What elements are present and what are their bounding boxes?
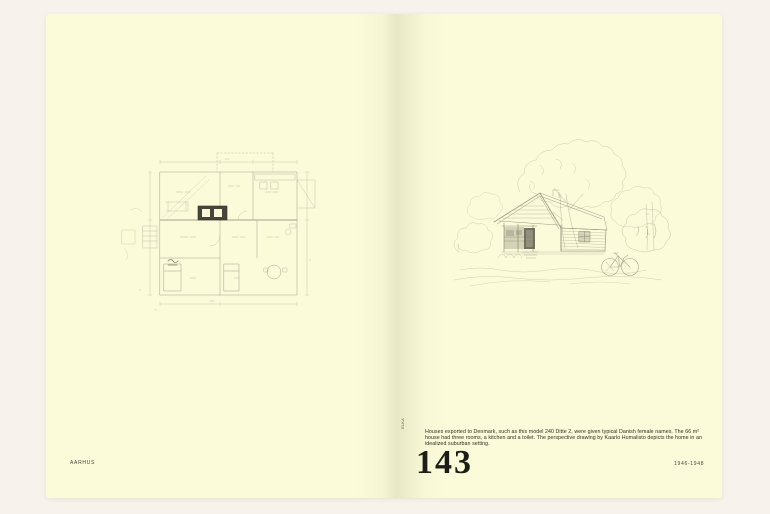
book-spread: AARHUS <box>46 14 722 498</box>
left-page-footer: AARHUS <box>70 460 95 466</box>
house-perspective-drawing-icon <box>440 130 680 310</box>
archive-credit: ELKA <box>401 418 405 429</box>
page-number: 143 <box>416 448 473 478</box>
book-spread-photo: AARHUS <box>0 0 770 514</box>
right-page-footer: 1946-1948 <box>674 461 704 467</box>
right-page: ELKA Houses exported to Denmark, such as… <box>384 14 722 498</box>
floor-plan-drawing-icon <box>110 140 340 320</box>
left-page: AARHUS <box>46 14 384 498</box>
